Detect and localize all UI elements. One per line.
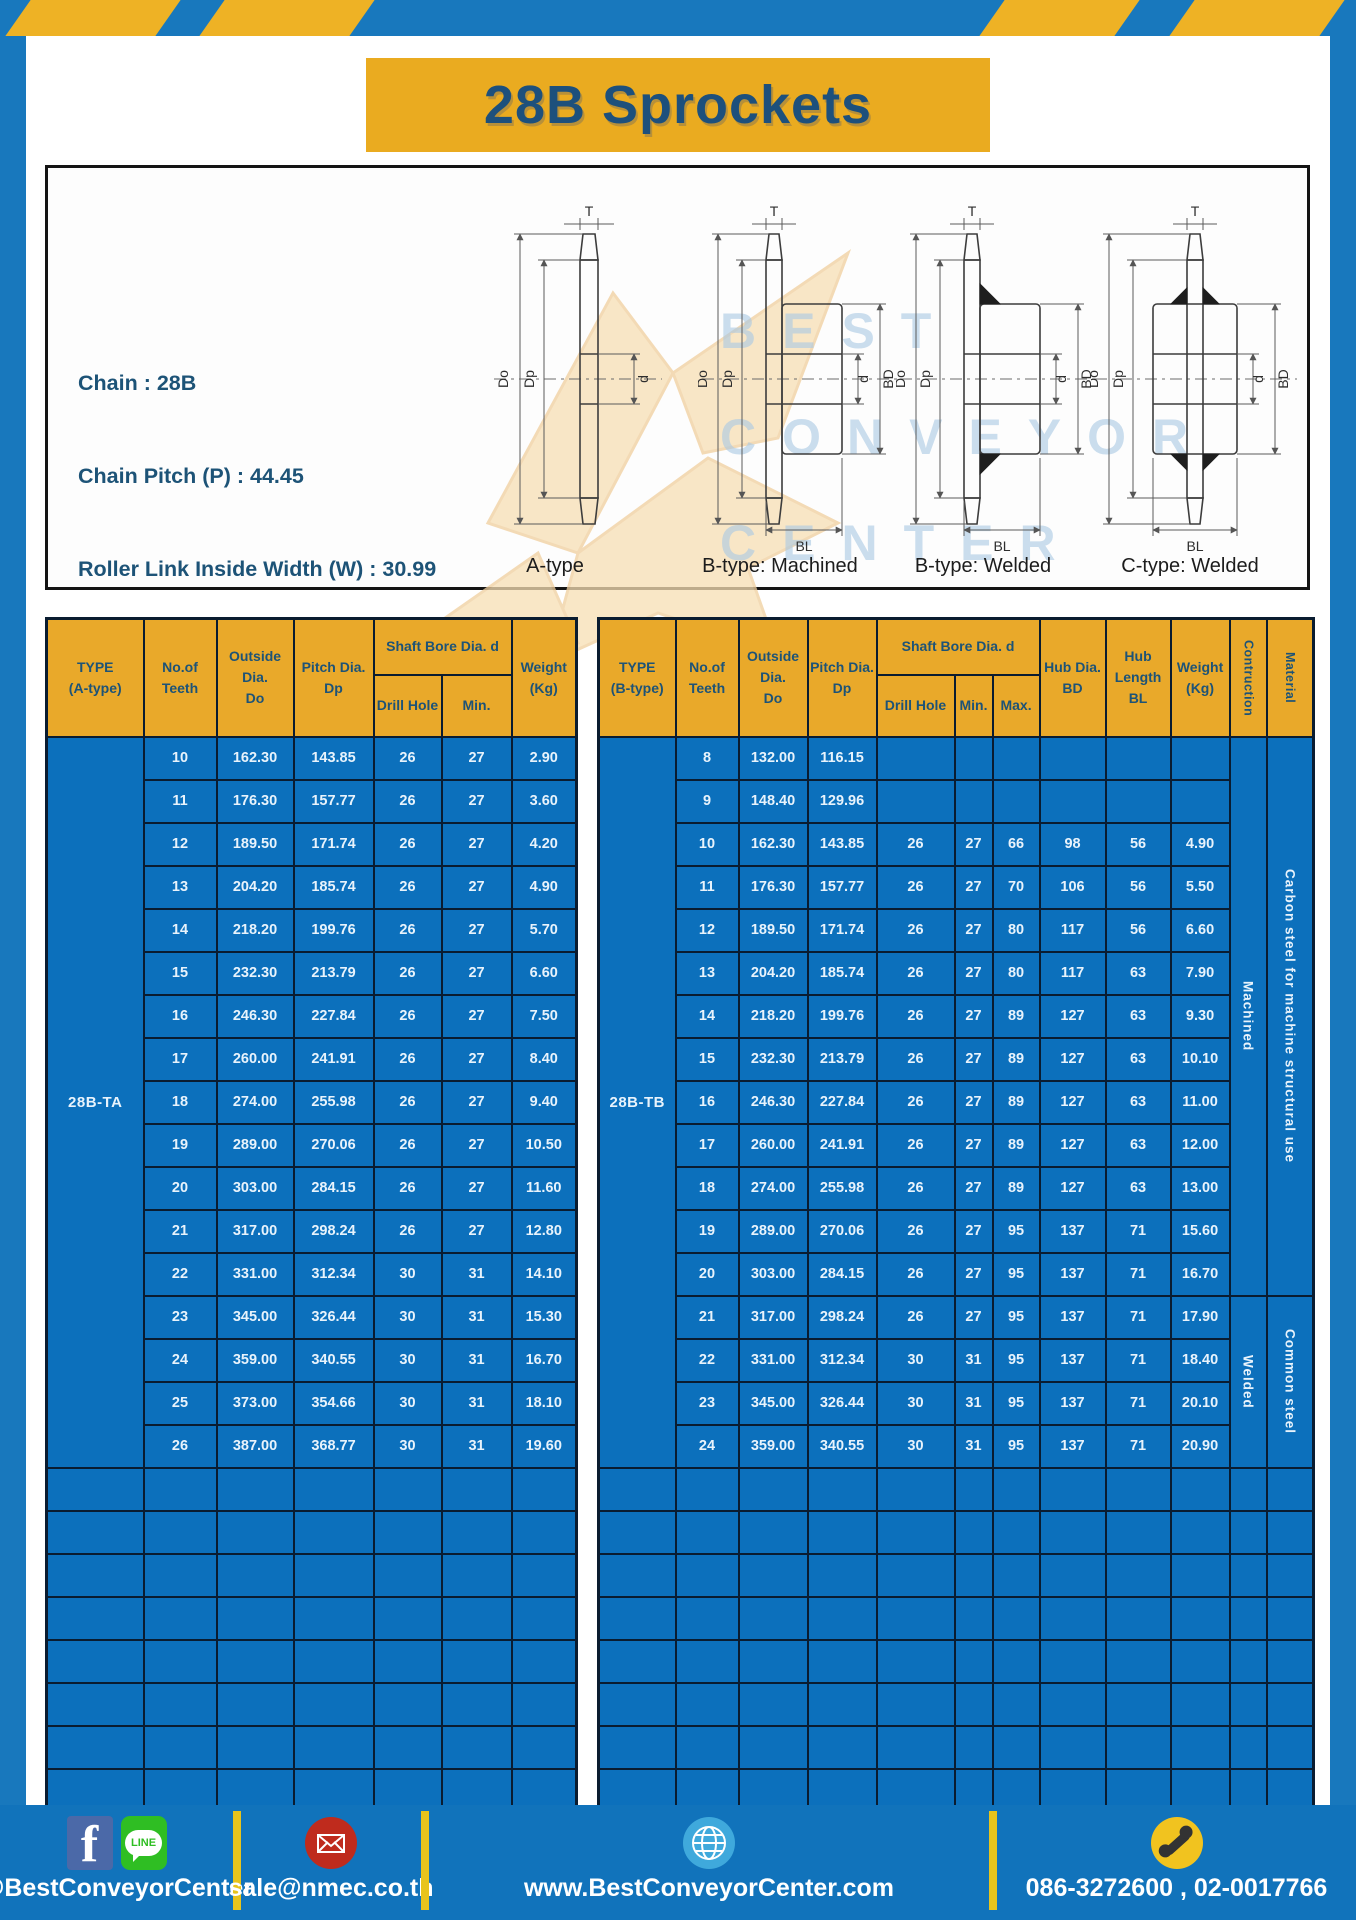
cell: 80 <box>993 909 1040 952</box>
empty-cell <box>1040 1468 1106 1511</box>
title-banner: 28B Sprockets <box>366 58 990 152</box>
cell: 185.74 <box>808 952 877 995</box>
empty-cell <box>1171 1554 1230 1597</box>
line-icon: LINE <box>121 1816 167 1870</box>
cell: 255.98 <box>808 1167 877 1210</box>
empty-cell <box>1230 1726 1267 1769</box>
table-a-row: 28B-TA10162.30143.8526272.90 <box>47 737 577 780</box>
svg-text:Dp: Dp <box>917 370 933 388</box>
cell: 106 <box>1040 866 1106 909</box>
footer-social-section: f LINE @BestConveyorCenter <box>0 1805 233 1920</box>
cell: 21 <box>676 1296 739 1339</box>
cell: 162.30 <box>739 823 808 866</box>
table-a-row-empty <box>47 1683 577 1726</box>
phone-icon <box>1149 1815 1205 1871</box>
cell: 270.06 <box>294 1124 374 1167</box>
header-construction: Contruction <box>1230 619 1267 737</box>
empty-cell <box>1230 1468 1267 1511</box>
cell: 331.00 <box>739 1339 808 1382</box>
table-b-row-empty <box>599 1554 1314 1597</box>
header-shaft-bore: Shaft Bore Dia. d <box>877 619 1040 675</box>
cell: 137 <box>1040 1425 1106 1468</box>
table-b-row: 24359.00340.553031951377120.90 <box>599 1425 1314 1468</box>
cell: 17 <box>676 1124 739 1167</box>
cell: 27 <box>442 780 512 823</box>
cell: 16.70 <box>512 1339 577 1382</box>
empty-cell <box>217 1640 294 1683</box>
cell: 274.00 <box>739 1167 808 1210</box>
cell: 284.15 <box>294 1167 374 1210</box>
cell: 89 <box>993 995 1040 1038</box>
cell: 298.24 <box>808 1296 877 1339</box>
empty-cell <box>599 1726 676 1769</box>
cell: 3.60 <box>512 780 577 823</box>
spec-line: Chain Pitch (P) : 44.45 <box>78 461 436 492</box>
empty-cell <box>1267 1511 1314 1554</box>
table-b-row-empty <box>599 1726 1314 1769</box>
cell: 9 <box>676 780 739 823</box>
cell: 27 <box>442 823 512 866</box>
cell: 30 <box>877 1425 955 1468</box>
cell: 26 <box>374 952 442 995</box>
cell: 26 <box>877 1167 955 1210</box>
cell: 241.91 <box>294 1038 374 1081</box>
cell: 22 <box>144 1253 217 1296</box>
material-cell: Common steel <box>1267 1296 1314 1468</box>
empty-cell <box>217 1597 294 1640</box>
cell: 15 <box>676 1038 739 1081</box>
empty-cell <box>993 737 1040 780</box>
svg-text:BL: BL <box>795 538 812 554</box>
cell: 80 <box>993 952 1040 995</box>
cell: 12 <box>676 909 739 952</box>
empty-cell <box>512 1683 577 1726</box>
empty-cell <box>993 1511 1040 1554</box>
cell: 71 <box>1106 1339 1171 1382</box>
cell: 31 <box>955 1382 993 1425</box>
empty-cell <box>1230 1640 1267 1683</box>
table-b-row: 17260.00241.912627891276312.00 <box>599 1124 1314 1167</box>
cell: 89 <box>993 1167 1040 1210</box>
empty-cell <box>808 1511 877 1554</box>
cell: 30 <box>374 1382 442 1425</box>
line-bubble: LINE <box>125 1830 162 1856</box>
cell: 71 <box>1106 1382 1171 1425</box>
cell: 26 <box>374 1167 442 1210</box>
empty-cell <box>374 1511 442 1554</box>
empty-cell <box>1106 1597 1171 1640</box>
empty-cell <box>1171 1597 1230 1640</box>
table-b-row: 12189.50171.74262780117566.60 <box>599 909 1314 952</box>
cell: 26 <box>877 1253 955 1296</box>
cell: 270.06 <box>808 1210 877 1253</box>
empty-cell <box>1171 1468 1230 1511</box>
cell: 89 <box>993 1038 1040 1081</box>
cell: 20.90 <box>1171 1425 1230 1468</box>
empty-cell <box>877 1640 955 1683</box>
footer-divider <box>421 1811 429 1910</box>
facebook-icon: f <box>67 1816 113 1870</box>
empty-cell <box>1230 1597 1267 1640</box>
header-outside-dia: Outside Dia. Do <box>217 619 294 737</box>
cell: 157.77 <box>808 866 877 909</box>
cell: 117 <box>1040 952 1106 995</box>
cell: 12.80 <box>512 1210 577 1253</box>
cell: 31 <box>955 1425 993 1468</box>
header-weight: Weight (Kg) <box>1171 619 1230 737</box>
empty-cell <box>1106 1554 1171 1597</box>
empty-cell <box>442 1554 512 1597</box>
cell: 30 <box>877 1382 955 1425</box>
cell: 27 <box>442 737 512 780</box>
table-a-row-empty <box>47 1468 577 1511</box>
empty-cell <box>512 1554 577 1597</box>
cell: 189.50 <box>217 823 294 866</box>
stripe-decoration <box>975 0 1144 36</box>
cell: 71 <box>1106 1296 1171 1339</box>
b-type-table: TYPE (B-type) No.of Teeth Outside Dia. D… <box>597 617 1315 1814</box>
cell: 30 <box>877 1339 955 1382</box>
cell: 26 <box>877 1038 955 1081</box>
cell: 148.40 <box>739 780 808 823</box>
cell: 26 <box>877 1081 955 1124</box>
cell: 16.70 <box>1171 1253 1230 1296</box>
cell: 127 <box>1040 1124 1106 1167</box>
spec-line: Chain : 28B <box>78 368 436 399</box>
a-type-drawing: Do Dp T d <box>488 204 668 556</box>
table-b-row: 13204.20185.74262780117637.90 <box>599 952 1314 995</box>
cell: 26 <box>374 1210 442 1253</box>
empty-cell <box>374 1597 442 1640</box>
cell: 5.70 <box>512 909 577 952</box>
table-a-row-empty <box>47 1511 577 1554</box>
empty-cell <box>676 1726 739 1769</box>
empty-cell <box>1267 1640 1314 1683</box>
table-b-row-empty <box>599 1468 1314 1511</box>
cell: 95 <box>993 1296 1040 1339</box>
empty-cell <box>676 1511 739 1554</box>
empty-cell <box>512 1640 577 1683</box>
cell: 232.30 <box>217 952 294 995</box>
cell: 8 <box>676 737 739 780</box>
empty-cell <box>808 1640 877 1683</box>
cell: 11 <box>144 780 217 823</box>
diagram-panel: BEST CONVEYOR CENTER Chain : 28B Chain P… <box>45 165 1310 590</box>
empty-cell <box>217 1468 294 1511</box>
empty-cell <box>676 1468 739 1511</box>
cell: 10.10 <box>1171 1038 1230 1081</box>
footer-email-section: sale@nmec.co.th <box>241 1805 421 1920</box>
empty-cell <box>144 1726 217 1769</box>
cell: 14 <box>144 909 217 952</box>
cell: 27 <box>442 995 512 1038</box>
header-material: Material <box>1267 619 1314 737</box>
construction-cell: Machined <box>1230 737 1267 1296</box>
empty-cell <box>294 1683 374 1726</box>
empty-cell <box>877 1597 955 1640</box>
cell: 7.90 <box>1171 952 1230 995</box>
empty-cell <box>442 1511 512 1554</box>
empty-cell <box>993 780 1040 823</box>
cell: 26 <box>374 823 442 866</box>
cell: 26 <box>374 1038 442 1081</box>
line-bubble-tail <box>133 1855 140 1862</box>
empty-cell <box>1106 1683 1171 1726</box>
cell: 26 <box>877 1210 955 1253</box>
empty-cell <box>1171 780 1230 823</box>
page-title: 28B Sprockets <box>484 74 872 136</box>
cell: 213.79 <box>808 1038 877 1081</box>
cell: 30 <box>374 1339 442 1382</box>
table-a-row-empty <box>47 1726 577 1769</box>
cell: 24 <box>676 1425 739 1468</box>
cell: 26 <box>877 1296 955 1339</box>
empty-cell <box>1230 1683 1267 1726</box>
empty-cell <box>1106 1511 1171 1554</box>
empty-cell <box>1040 1640 1106 1683</box>
cell: 4.20 <box>512 823 577 866</box>
cell: 246.30 <box>739 1081 808 1124</box>
cell: 9.30 <box>1171 995 1230 1038</box>
cell: 30 <box>374 1253 442 1296</box>
header-min: Min. <box>442 675 512 737</box>
cell: 70 <box>993 866 1040 909</box>
empty-cell <box>1267 1554 1314 1597</box>
svg-text:Do: Do <box>698 370 710 388</box>
cell: 15.60 <box>1171 1210 1230 1253</box>
a-type-table: TYPE (A-type) No.of Teeth Outside Dia. D… <box>45 617 578 1814</box>
header-drill-hole: Drill Hole <box>877 675 955 737</box>
cell: 171.74 <box>294 823 374 866</box>
table-b-row: 10162.30143.8526276698564.90 <box>599 823 1314 866</box>
header-type: TYPE (B-type) <box>599 619 676 737</box>
cell: 137 <box>1040 1382 1106 1425</box>
empty-cell <box>217 1683 294 1726</box>
cell: 10 <box>676 823 739 866</box>
svg-text:Do: Do <box>495 370 511 388</box>
header-type: TYPE (A-type) <box>47 619 144 737</box>
footer-bar: f LINE @BestConveyorCenter <box>0 1805 1356 1920</box>
empty-cell <box>676 1597 739 1640</box>
table-a-row-empty <box>47 1597 577 1640</box>
cell: 9.40 <box>512 1081 577 1124</box>
header-drill-hole: Drill Hole <box>374 675 442 737</box>
svg-text:BD: BD <box>1275 369 1291 388</box>
empty-cell <box>1267 1683 1314 1726</box>
type-label-cell: 28B-TB <box>599 737 676 1468</box>
cell: 63 <box>1106 1124 1171 1167</box>
cell: 15.30 <box>512 1296 577 1339</box>
empty-cell <box>1171 1726 1230 1769</box>
empty-cell <box>993 1640 1040 1683</box>
empty-cell <box>1106 1726 1171 1769</box>
empty-cell <box>599 1683 676 1726</box>
header-min: Min. <box>955 675 993 737</box>
empty-cell <box>374 1468 442 1511</box>
table-b-row-empty <box>599 1511 1314 1554</box>
cell: 157.77 <box>294 780 374 823</box>
cell: 117 <box>1040 909 1106 952</box>
material-cell: Carbon steel for machine structural use <box>1267 737 1314 1296</box>
empty-cell <box>599 1640 676 1683</box>
empty-cell <box>1040 1554 1106 1597</box>
empty-cell <box>512 1597 577 1640</box>
cell: 27 <box>955 1253 993 1296</box>
empty-cell <box>47 1511 144 1554</box>
svg-text:Do: Do <box>896 370 908 388</box>
cell: 26 <box>877 995 955 1038</box>
cell: 331.00 <box>217 1253 294 1296</box>
empty-cell <box>739 1726 808 1769</box>
empty-cell <box>294 1597 374 1640</box>
cell: 63 <box>1106 1167 1171 1210</box>
empty-cell <box>993 1468 1040 1511</box>
empty-cell <box>877 1511 955 1554</box>
catalog-page: 28B Sprockets BEST CONVEYOR CENTER Chain… <box>0 0 1356 1920</box>
table-a-row-empty <box>47 1554 577 1597</box>
empty-cell <box>808 1726 877 1769</box>
table-b-row: 20303.00284.152627951377116.70 <box>599 1253 1314 1296</box>
empty-cell <box>599 1511 676 1554</box>
cell: 326.44 <box>808 1382 877 1425</box>
empty-cell <box>877 780 955 823</box>
footer-website-section: www.BestConveyorCenter.com <box>429 1805 989 1920</box>
cell: 22 <box>676 1339 739 1382</box>
empty-cell <box>47 1683 144 1726</box>
cell: 13.00 <box>1171 1167 1230 1210</box>
cell: 95 <box>993 1210 1040 1253</box>
empty-cell <box>877 1554 955 1597</box>
cell: 27 <box>442 909 512 952</box>
cell: 23 <box>144 1296 217 1339</box>
empty-cell <box>1040 1511 1106 1554</box>
header-hub-dia: Hub Dia. BD <box>1040 619 1106 737</box>
empty-cell <box>955 1511 993 1554</box>
header-teeth: No.of Teeth <box>144 619 217 737</box>
empty-cell <box>1171 1640 1230 1683</box>
footer-divider <box>989 1811 997 1910</box>
cell: 185.74 <box>294 866 374 909</box>
table-b-row: 28B-TB8132.00116.15MachinedCarbon steel … <box>599 737 1314 780</box>
cell: 26 <box>877 1124 955 1167</box>
drawing-caption: B-type: Welded <box>873 555 1093 578</box>
cell: 15 <box>144 952 217 995</box>
svg-text:T: T <box>770 204 779 219</box>
cell: 56 <box>1106 823 1171 866</box>
cell: 71 <box>1106 1425 1171 1468</box>
svg-text:T: T <box>1191 204 1200 219</box>
b-type-welded-drawing: Do Dp T d BD BL <box>896 204 1101 556</box>
svg-text:d: d <box>1053 375 1069 383</box>
cell: 27 <box>955 1081 993 1124</box>
cell: 23 <box>676 1382 739 1425</box>
table-b-row: 9148.40129.96 <box>599 780 1314 823</box>
empty-cell <box>1171 1511 1230 1554</box>
cell: 31 <box>442 1296 512 1339</box>
cell: 137 <box>1040 1210 1106 1253</box>
cell: 20 <box>144 1167 217 1210</box>
empty-cell <box>676 1640 739 1683</box>
empty-cell <box>294 1511 374 1554</box>
table-b-row: 18274.00255.982627891276313.00 <box>599 1167 1314 1210</box>
cell: 27 <box>955 1296 993 1339</box>
empty-cell <box>144 1683 217 1726</box>
cell: 17.90 <box>1171 1296 1230 1339</box>
cell: 171.74 <box>808 909 877 952</box>
empty-cell <box>993 1554 1040 1597</box>
header-pitch-dia: Pitch Dia. Dp <box>808 619 877 737</box>
cell: 199.76 <box>294 909 374 952</box>
empty-cell <box>144 1554 217 1597</box>
empty-cell <box>1106 1640 1171 1683</box>
empty-cell <box>442 1640 512 1683</box>
empty-cell <box>512 1726 577 1769</box>
table-b-row-empty <box>599 1597 1314 1640</box>
empty-cell <box>1040 737 1106 780</box>
cell: 227.84 <box>294 995 374 1038</box>
empty-cell <box>993 1726 1040 1769</box>
cell: 204.20 <box>217 866 294 909</box>
cell: 56 <box>1106 909 1171 952</box>
cell: 63 <box>1106 1038 1171 1081</box>
cell: 4.90 <box>1171 823 1230 866</box>
empty-cell <box>1106 780 1171 823</box>
cell: 373.00 <box>217 1382 294 1425</box>
empty-cell <box>599 1468 676 1511</box>
empty-cell <box>1230 1554 1267 1597</box>
cell: 27 <box>955 995 993 1038</box>
svg-text:Dp: Dp <box>1110 370 1126 388</box>
cell: 31 <box>955 1339 993 1382</box>
empty-cell <box>1040 1683 1106 1726</box>
cell: 63 <box>1106 995 1171 1038</box>
cell: 16 <box>676 1081 739 1124</box>
empty-cell <box>47 1640 144 1683</box>
cell: 176.30 <box>217 780 294 823</box>
cell: 137 <box>1040 1296 1106 1339</box>
header-hub-length: Hub Length BL <box>1106 619 1171 737</box>
cell: 31 <box>442 1339 512 1382</box>
cell: 127 <box>1040 1081 1106 1124</box>
cell: 89 <box>993 1124 1040 1167</box>
empty-cell <box>217 1511 294 1554</box>
empty-cell <box>294 1726 374 1769</box>
cell: 27 <box>442 1038 512 1081</box>
cell: 260.00 <box>217 1038 294 1081</box>
cell: 312.34 <box>808 1339 877 1382</box>
cell: 27 <box>955 866 993 909</box>
cell: 289.00 <box>739 1210 808 1253</box>
cell: 27 <box>955 1210 993 1253</box>
cell: 368.77 <box>294 1425 374 1468</box>
cell: 27 <box>955 823 993 866</box>
empty-cell <box>47 1726 144 1769</box>
empty-cell <box>739 1511 808 1554</box>
construction-cell: Welded <box>1230 1296 1267 1468</box>
empty-cell <box>47 1597 144 1640</box>
empty-cell <box>217 1554 294 1597</box>
cell: 6.60 <box>512 952 577 995</box>
website-url: www.BestConveyorCenter.com <box>524 1874 894 1903</box>
table-b-row: 15232.30213.792627891276310.10 <box>599 1038 1314 1081</box>
cell: 359.00 <box>739 1425 808 1468</box>
svg-text:BD: BD <box>880 369 896 388</box>
empty-cell <box>808 1683 877 1726</box>
type-label-cell: 28B-TA <box>47 737 144 1468</box>
cell: 13 <box>676 952 739 995</box>
cell: 27 <box>442 1210 512 1253</box>
empty-cell <box>877 1683 955 1726</box>
